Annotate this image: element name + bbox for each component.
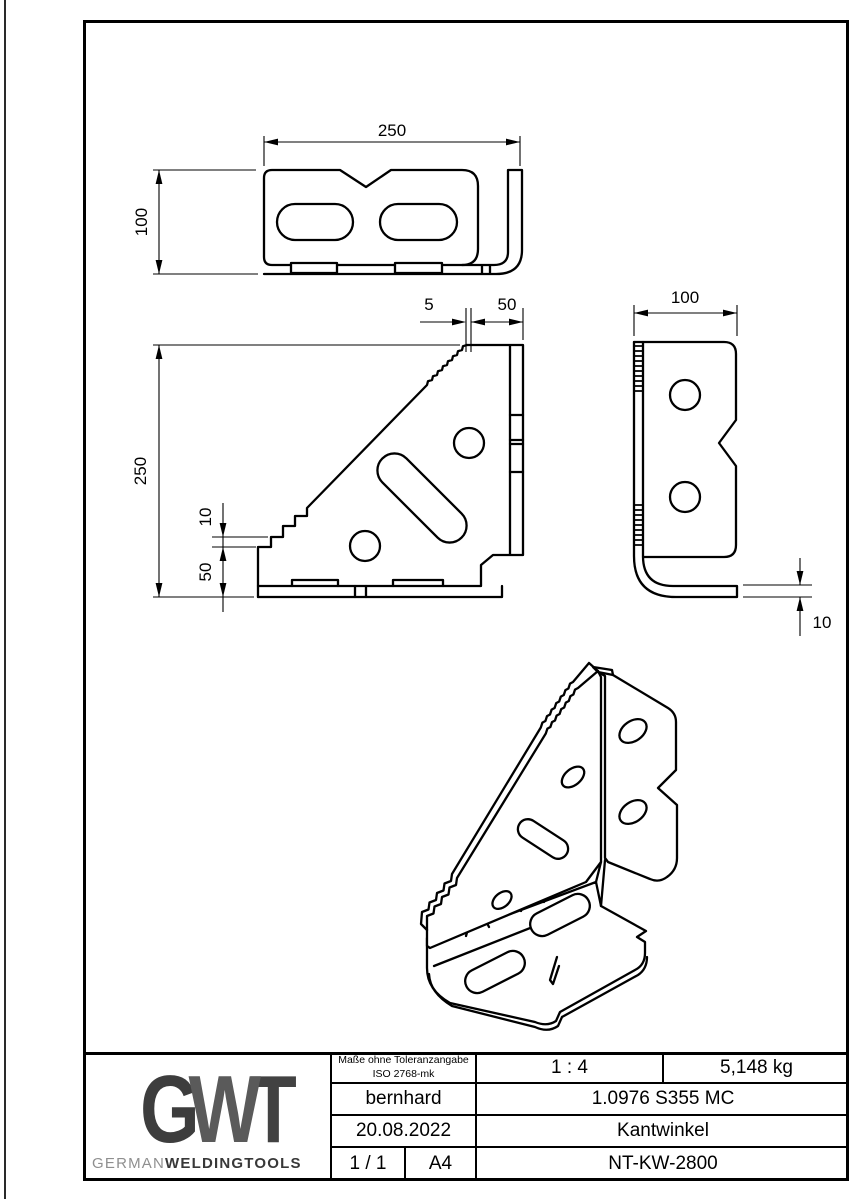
dim-side-width: 100 [671,288,699,307]
front-view-edge-ticks [510,415,523,472]
dim-front-height: 250 [131,457,150,485]
side-view: 100 10 [634,288,831,636]
dim-front-base-height: 50 [196,563,215,582]
paper-format: A4 [406,1148,475,1179]
part-name: Kantwinkel [477,1116,849,1146]
material-value: 1.0976 S355 MC [477,1084,849,1114]
front-view-serrated-edge [258,345,467,597]
company-logo: GWT GERMANWELDINGTOOLS [86,1055,330,1178]
weight-value: 5,148 kg [664,1054,849,1082]
logo-letter-w: W [189,1056,261,1163]
front-view: 250 5 50 10 50 [131,295,523,612]
top-view-slot-right [380,204,457,240]
top-view-flange-edge [264,170,522,274]
top-view-slot-left [277,204,353,240]
front-view-hole-lower [350,531,380,561]
dim-front-step: 10 [196,508,215,527]
dim-top-depth: 100 [132,208,151,236]
side-view-serration-hatch [634,346,643,545]
author-value: bernhard [332,1084,475,1114]
tolerance-note-line1: Maße ohne Toleranzangabe [338,1054,469,1068]
side-view-flange-outline [634,342,736,557]
front-view-base-tabs [292,580,443,597]
gwt-logo: GWT [140,1067,297,1153]
dim-top-length: 250 [378,121,406,140]
front-view-outline [258,345,523,597]
side-view-hole-lower [670,482,700,512]
scale-value: 1 : 4 [477,1054,662,1082]
isometric-view [421,663,677,1030]
front-view-hole-upper [454,428,484,458]
date-value: 20.08.2022 [332,1116,475,1146]
drawing-sheet: 250 100 250 5 [0,0,868,1199]
sheet-value: 1 / 1 [332,1148,404,1179]
drawing-number: NT-KW-2800 [477,1148,849,1179]
tolerance-note-line2: ISO 2768-mk [373,1068,435,1082]
iso-flange-plate [598,672,677,881]
top-view-plate-outline [264,170,478,265]
drawing-views: 250 100 250 5 [0,0,868,1199]
top-view-dimensions: 250 100 [132,121,520,274]
dim-front-flange-offset: 50 [498,295,517,314]
dim-side-thickness: 10 [813,613,832,632]
title-block: GWT GERMANWELDINGTOOLS Maße ohne Toleran… [83,1052,849,1181]
side-view-hole-upper [670,380,700,410]
top-view: 250 100 [132,121,522,274]
front-view-dimensions: 250 5 50 10 50 [131,295,523,612]
tolerance-note: Maße ohne Toleranzangabe ISO 2768-mk [332,1054,475,1082]
front-view-slot [370,446,473,549]
dim-front-pitch: 5 [424,295,433,314]
